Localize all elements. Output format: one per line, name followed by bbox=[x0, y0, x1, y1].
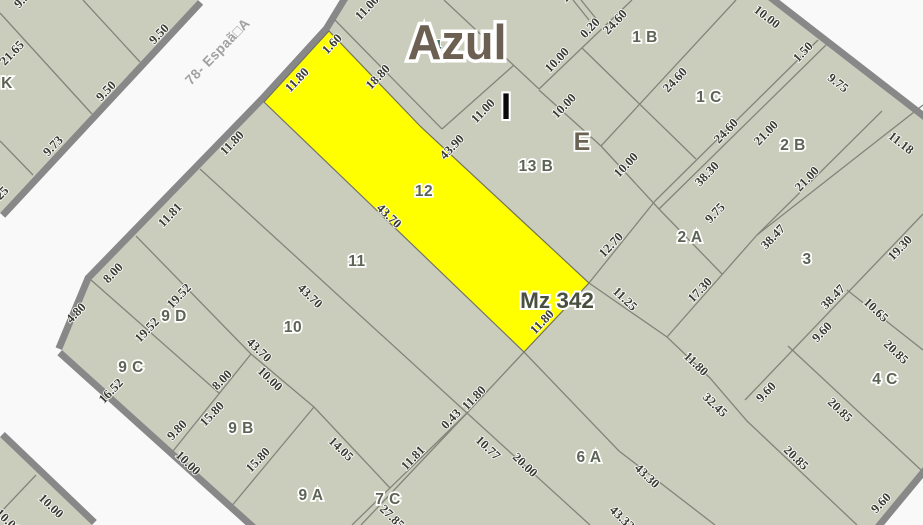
svg-text:Mz 342: Mz 342 bbox=[520, 288, 594, 313]
svg-text:9 A: 9 A bbox=[298, 487, 323, 504]
svg-text:2 A: 2 A bbox=[677, 229, 702, 246]
svg-text:E: E bbox=[574, 128, 591, 156]
svg-text:1 B: 1 B bbox=[632, 29, 658, 46]
svg-text:6 A: 6 A bbox=[576, 449, 601, 466]
svg-text:9 D: 9 D bbox=[161, 308, 187, 325]
svg-text:10: 10 bbox=[284, 319, 302, 336]
svg-text:12: 12 bbox=[415, 183, 433, 200]
svg-text:K: K bbox=[1, 75, 13, 92]
svg-text:1 C: 1 C bbox=[696, 89, 722, 106]
svg-text:9 B: 9 B bbox=[228, 420, 254, 437]
svg-text:11: 11 bbox=[348, 253, 365, 270]
svg-text:4 C: 4 C bbox=[872, 371, 898, 388]
svg-text:2 B: 2 B bbox=[780, 137, 806, 154]
svg-text:13 B: 13 B bbox=[519, 158, 554, 175]
svg-text:7 C: 7 C bbox=[375, 491, 401, 508]
svg-text:I: I bbox=[501, 86, 511, 127]
svg-text:3: 3 bbox=[802, 251, 811, 268]
svg-text:Azul: Azul bbox=[408, 16, 507, 70]
svg-text:9 C: 9 C bbox=[118, 359, 144, 376]
